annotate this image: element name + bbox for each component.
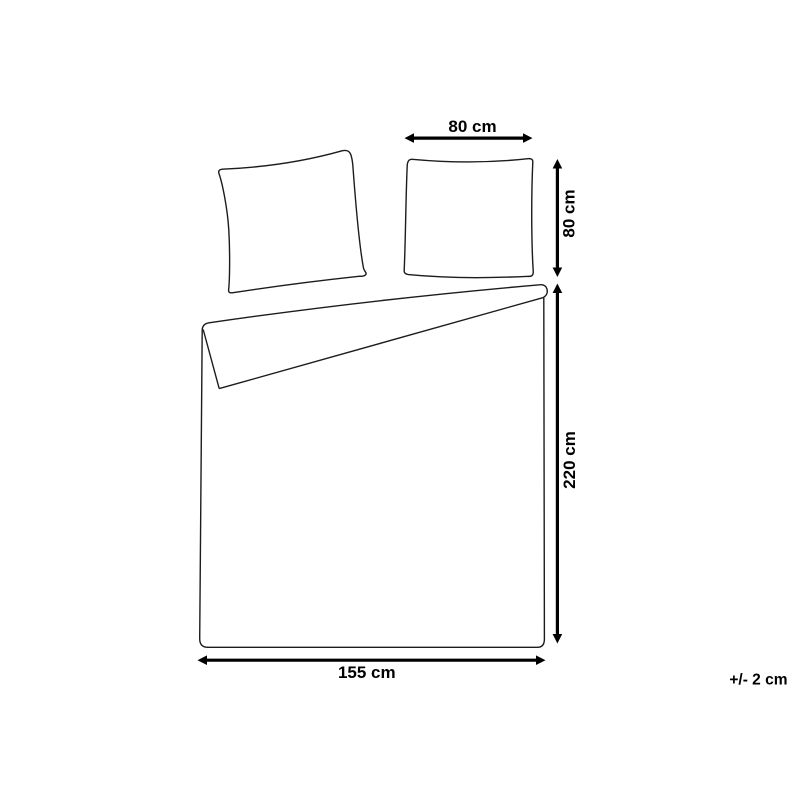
svg-text:+/- 2 cm: +/- 2 cm [729, 672, 787, 689]
svg-text:80 cm: 80 cm [560, 189, 579, 237]
svg-text:155 cm: 155 cm [338, 663, 396, 682]
svg-text:80 cm: 80 cm [448, 117, 496, 136]
svg-text:220 cm: 220 cm [560, 431, 579, 489]
